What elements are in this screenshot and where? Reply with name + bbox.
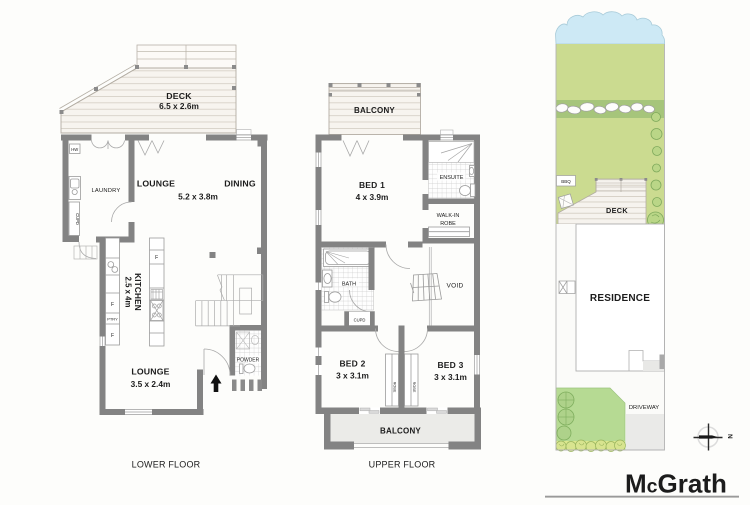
svg-text:3 x 3.1m: 3 x 3.1m [434, 372, 467, 382]
svg-text:F: F [111, 302, 114, 308]
svg-text:BALCONY: BALCONY [380, 427, 421, 436]
svg-text:F: F [155, 255, 158, 261]
svg-text:DECK: DECK [606, 206, 628, 215]
svg-text:VOID: VOID [446, 283, 463, 290]
svg-text:BED 1: BED 1 [359, 180, 385, 190]
svg-text:ENSUITE: ENSUITE [440, 175, 464, 181]
svg-text:McGrath: McGrath [625, 469, 727, 499]
svg-text:5.2 x 3.8m: 5.2 x 3.8m [178, 192, 218, 202]
svg-text:LOUNGE: LOUNGE [131, 367, 169, 377]
svg-text:BED 2: BED 2 [339, 359, 365, 369]
svg-text:CUPD: CUPD [75, 213, 80, 225]
svg-text:3 x 3.1m: 3 x 3.1m [336, 371, 369, 381]
svg-text:UPPER FLOOR: UPPER FLOOR [369, 460, 436, 470]
svg-text:LOUNGE: LOUNGE [137, 179, 175, 189]
svg-text:ROBE: ROBE [440, 221, 456, 227]
svg-text:BATH: BATH [342, 282, 356, 288]
svg-text:F: F [111, 333, 114, 339]
svg-text:2.5 x 4m: 2.5 x 4m [124, 277, 133, 308]
svg-text:RESIDENCE: RESIDENCE [590, 293, 650, 304]
svg-text:KITCHEN: KITCHEN [133, 273, 142, 311]
svg-text:LAUNDRY: LAUNDRY [92, 188, 121, 194]
svg-text:HW: HW [71, 147, 78, 152]
svg-text:POWDER: POWDER [237, 358, 260, 364]
svg-text:CUPD: CUPD [354, 318, 366, 323]
svg-text:BALCONY: BALCONY [354, 106, 395, 115]
svg-text:DRIVEWAY: DRIVEWAY [629, 405, 659, 411]
svg-text:BBQ: BBQ [561, 179, 571, 184]
svg-text:3.5 x 2.4m: 3.5 x 2.4m [131, 379, 171, 389]
svg-text:DECK: DECK [166, 91, 192, 101]
svg-text:WALK-IN: WALK-IN [437, 213, 460, 219]
svg-text:LOWER FLOOR: LOWER FLOOR [132, 460, 201, 470]
svg-text:N: N [726, 434, 733, 439]
svg-text:ROBE: ROBE [393, 382, 397, 393]
svg-text:PTRY: PTRY [107, 317, 118, 322]
svg-text:BED 3: BED 3 [437, 360, 463, 370]
svg-text:DINING: DINING [224, 179, 256, 189]
svg-text:6.5 x 2.6m: 6.5 x 2.6m [159, 101, 199, 111]
svg-text:4 x 3.9m: 4 x 3.9m [356, 192, 389, 202]
svg-text:ROBE: ROBE [412, 382, 416, 393]
